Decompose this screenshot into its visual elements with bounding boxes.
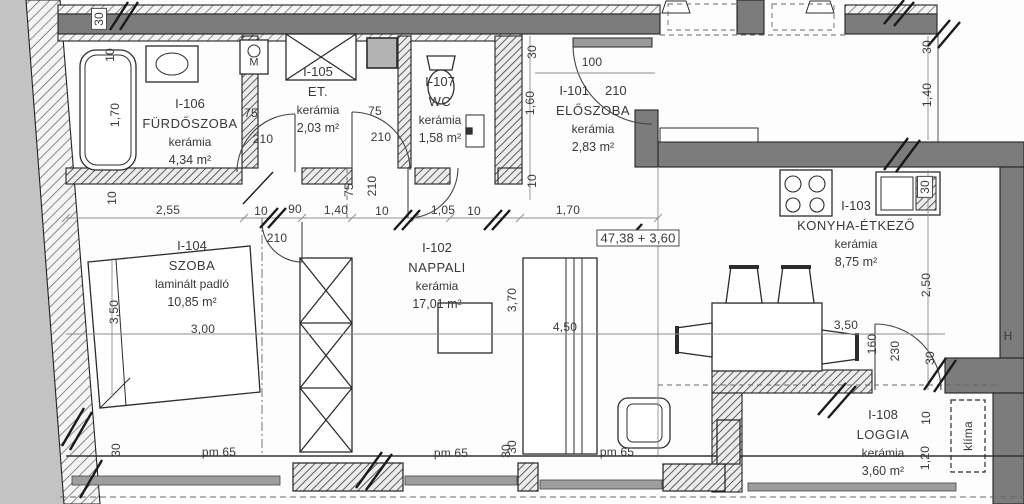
dimension-label: 210: [371, 131, 392, 143]
dimension-label: 30: [526, 45, 538, 59]
dimension-label: 10: [104, 48, 116, 62]
dimension-label: 160: [866, 334, 878, 355]
room-label-eloszoba: I-101 210 ELŐSZOBA kerámia 2,83 m²: [556, 81, 630, 157]
shaft-icon: [367, 38, 397, 68]
klima-label: klíma: [962, 421, 974, 451]
dimension-label: 2,55: [156, 204, 180, 216]
dimension-label: 30: [917, 176, 933, 198]
dimension-label: 210: [605, 81, 627, 101]
dimension-label: 1,05: [431, 204, 455, 216]
dimension-label: 30: [91, 8, 107, 30]
dimension-label: 100: [582, 56, 603, 68]
dimension-label: 3,70: [506, 288, 518, 312]
dimension-label: 1,70: [109, 103, 121, 127]
dimension-label: 30: [110, 443, 122, 457]
dimension-label: 210: [253, 133, 274, 145]
h-label: H: [1004, 330, 1013, 342]
wardrobe-column-icon: [300, 258, 352, 452]
parapet-label: pm 65: [434, 447, 468, 459]
room-label-szoba: I-104 SZOBA laminált padló 10,85 m²: [155, 236, 229, 312]
dimension-label: 10: [106, 191, 118, 205]
dimension-label: 30: [924, 351, 936, 365]
parapet-label: pm 65: [600, 446, 634, 458]
dimension-label: 3,00: [191, 323, 215, 335]
armchair-icon: [618, 398, 670, 448]
sideboard-icon: [523, 258, 597, 454]
dimension-label: 10: [467, 205, 481, 217]
entry-door-icon: [573, 38, 652, 47]
room-label-konyha: I-103 KONYHA-ÉTKEZŐ kerámia 8,75 m²: [797, 196, 915, 272]
total-area-label: 47,38 + 3,60: [596, 230, 679, 247]
washing-machine-label: M: [249, 58, 258, 69]
room-label-furdoszoba: I-106 FÜRDŐSZOBA kerámia 4,34 m²: [142, 94, 237, 170]
dimension-label: 30: [500, 444, 512, 458]
dimension-label: 10: [254, 205, 268, 217]
dimension-label: 75: [343, 183, 355, 197]
dimension-label: 75: [368, 105, 382, 117]
dimension-label: 10: [375, 205, 389, 217]
room-label-loggia: I-108 LOGGIA kerámia 3,60 m²: [857, 405, 910, 481]
room-label-et: I-105 ET. kerámia 2,03 m²: [297, 62, 340, 138]
dimension-label: 10: [920, 411, 932, 425]
dimension-label: 30: [921, 40, 933, 54]
dimension-label: 3,50: [834, 319, 858, 331]
floor-plan: I-106 FÜRDŐSZOBA kerámia 4,34 m² I-105 E…: [0, 0, 1024, 504]
room-label-wc: I-107 WC kerámia 1,58 m²: [419, 72, 462, 148]
dimension-label: 210: [267, 232, 288, 244]
dimension-label: 1,40: [324, 204, 348, 216]
room-label-nappali: I-102 NAPPALI kerámia 17,01 m²: [408, 238, 465, 314]
dimension-label: 4,50: [553, 321, 577, 333]
dimension-label: 210: [366, 176, 378, 197]
dimension-label: 1,70: [556, 204, 580, 216]
dining-table-icon: [712, 303, 822, 371]
dimension-label: 75: [244, 107, 258, 119]
dimension-label: 230: [889, 341, 901, 362]
dimension-label: 10: [526, 174, 538, 188]
dimension-label: 3,50: [108, 300, 120, 324]
dimension-label: 1,40: [921, 83, 933, 107]
parapet-label: pm 65: [202, 446, 236, 458]
dimension-label: 2,50: [920, 273, 932, 297]
dimension-label: 1,20: [919, 446, 931, 470]
dimension-label: 1,60: [524, 91, 536, 115]
dimension-label: 90: [288, 203, 302, 215]
